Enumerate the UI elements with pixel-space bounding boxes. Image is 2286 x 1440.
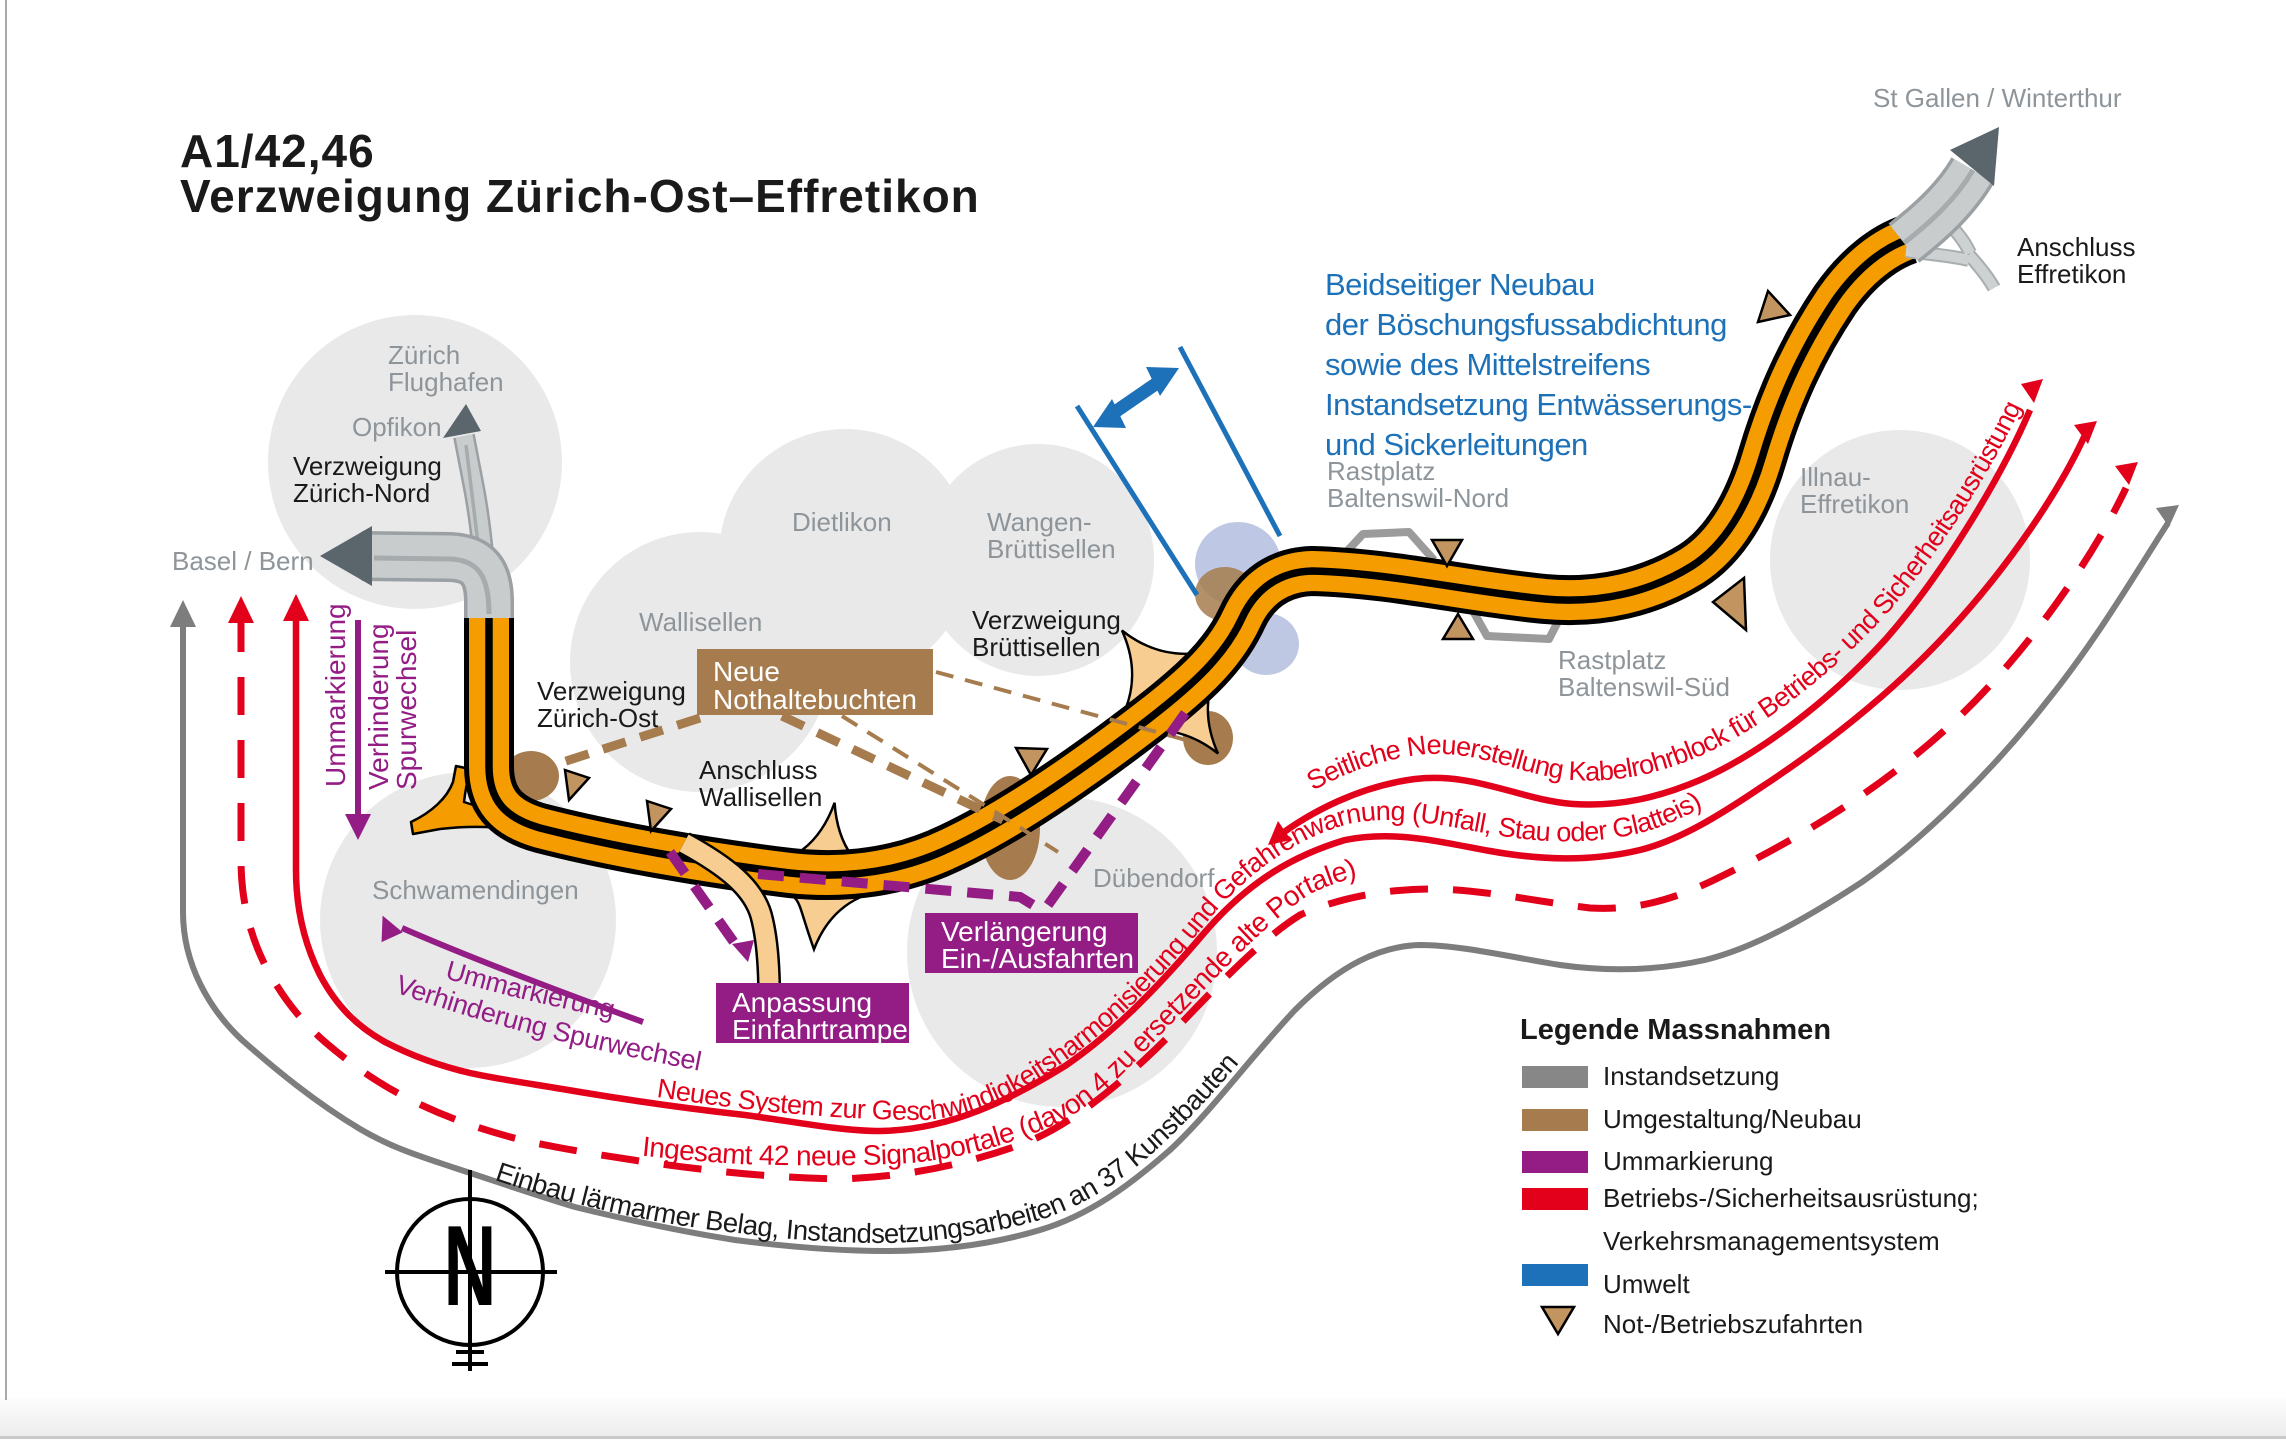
svg-text:Umwelt: Umwelt xyxy=(1603,1269,1690,1299)
svg-text:N: N xyxy=(444,1203,497,1330)
svg-text:Neue: Neue xyxy=(713,656,780,687)
svg-text:Wallisellen: Wallisellen xyxy=(699,782,822,812)
svg-text:Brüttisellen: Brüttisellen xyxy=(972,632,1101,662)
svg-text:Beidseitiger Neubau: Beidseitiger Neubau xyxy=(1325,267,1595,302)
svg-text:Zürich-Nord: Zürich-Nord xyxy=(293,478,430,508)
svg-text:Wangen-: Wangen- xyxy=(987,507,1092,537)
svg-text:Umgestaltung/Neubau: Umgestaltung/Neubau xyxy=(1603,1104,1862,1134)
svg-text:Rastplatz: Rastplatz xyxy=(1558,645,1666,675)
svg-text:Zürich-Ost: Zürich-Ost xyxy=(537,703,659,733)
svg-text:Einfahrtrampe: Einfahrtrampe xyxy=(732,1014,908,1045)
svg-text:Schwamendingen: Schwamendingen xyxy=(372,875,579,905)
svg-text:Instandsetzung: Instandsetzung xyxy=(1603,1061,1779,1091)
svg-text:Ummarkierung: Ummarkierung xyxy=(1603,1146,1774,1176)
svg-text:Legende Massnahmen: Legende Massnahmen xyxy=(1520,1014,1831,1046)
svg-text:Rastplatz: Rastplatz xyxy=(1327,456,1435,486)
svg-text:Instandsetzung Entwässerungs-: Instandsetzung Entwässerungs- xyxy=(1325,387,1752,422)
svg-text:Dietlikon: Dietlikon xyxy=(792,507,892,537)
svg-text:Wallisellen: Wallisellen xyxy=(639,607,762,637)
svg-text:Anschluss: Anschluss xyxy=(2017,232,2136,262)
svg-text:Verzweigung: Verzweigung xyxy=(293,451,442,481)
svg-text:Zürich: Zürich xyxy=(388,340,460,370)
svg-text:Not-/Betriebszufahrten: Not-/Betriebszufahrten xyxy=(1603,1309,1863,1339)
svg-text:Anschluss: Anschluss xyxy=(699,755,818,785)
svg-text:Verkehrsmanagementsystem: Verkehrsmanagementsystem xyxy=(1603,1226,1940,1256)
svg-text:Effretikon: Effretikon xyxy=(1800,489,1909,519)
svg-text:Verzweigung: Verzweigung xyxy=(537,676,686,706)
svg-text:Opfikon: Opfikon xyxy=(352,412,442,442)
svg-text:Effretikon: Effretikon xyxy=(2017,259,2126,289)
svg-text:Verzweigung Zürich-Ost–Effreti: Verzweigung Zürich-Ost–Effretikon xyxy=(180,170,980,222)
svg-text:Verhinderung: Verhinderung xyxy=(363,623,394,790)
svg-text:Ein-/Ausfahrten: Ein-/Ausfahrten xyxy=(941,943,1134,974)
svg-text:Verzweigung: Verzweigung xyxy=(972,605,1121,635)
svg-text:Betriebs-/Sicherheitsausrüstun: Betriebs-/Sicherheitsausrüstung; xyxy=(1603,1183,1979,1213)
svg-text:Spurwechsel: Spurwechsel xyxy=(391,630,422,790)
svg-text:Dübendorf: Dübendorf xyxy=(1093,863,1215,893)
svg-text:Ummarkierung: Ummarkierung xyxy=(320,603,351,787)
svg-text:Basel / Bern: Basel / Bern xyxy=(172,546,314,576)
svg-text:Nothaltebuchten: Nothaltebuchten xyxy=(713,684,917,715)
svg-text:Baltenswil-Süd: Baltenswil-Süd xyxy=(1558,672,1730,702)
svg-text:der Böschungsfussabdichtung: der Böschungsfussabdichtung xyxy=(1325,307,1727,342)
svg-text:Brüttisellen: Brüttisellen xyxy=(987,534,1116,564)
svg-text:St Gallen / Winterthur: St Gallen / Winterthur xyxy=(1873,83,2122,113)
svg-text:sowie des Mittelstreifens: sowie des Mittelstreifens xyxy=(1325,347,1650,382)
svg-text:Baltenswil-Nord: Baltenswil-Nord xyxy=(1327,483,1509,513)
svg-text:Flughafen: Flughafen xyxy=(388,367,504,397)
svg-text:Illnau-: Illnau- xyxy=(1800,462,1871,492)
